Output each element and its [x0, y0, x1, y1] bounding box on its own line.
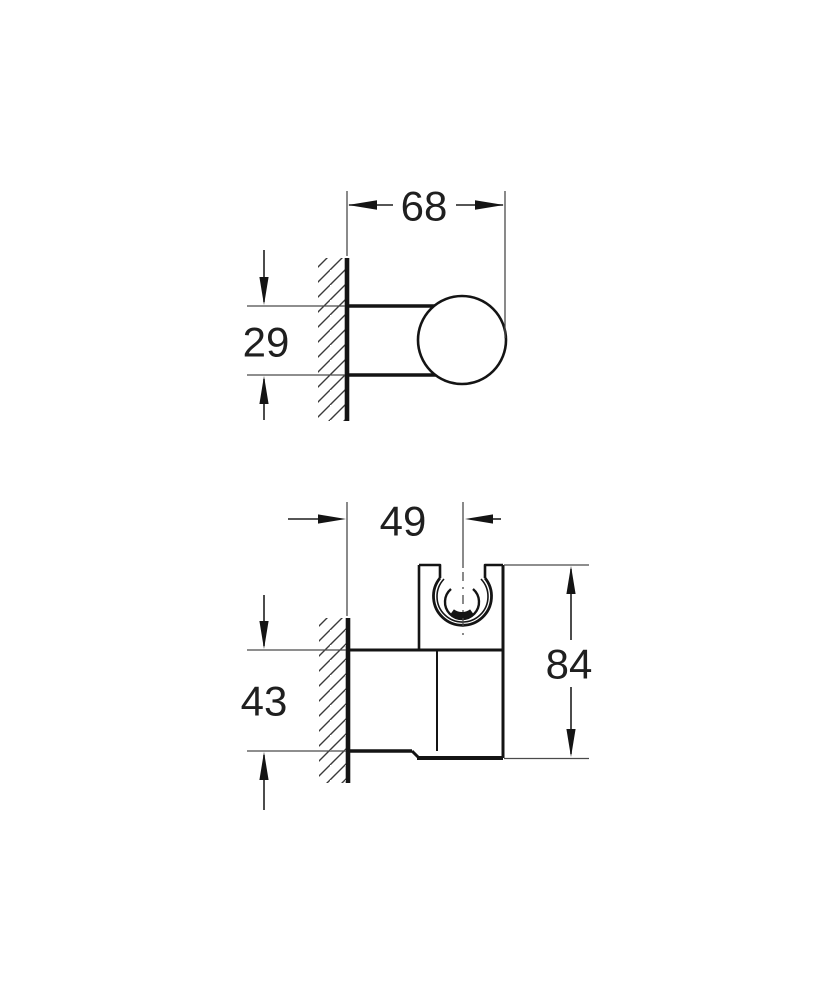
ball-knob-circle: [418, 296, 506, 384]
arrowhead-left-icon: [465, 514, 493, 523]
dimension-drawing-canvas: 68 29: [0, 0, 833, 1000]
holder-body: [348, 565, 503, 758]
dimension-49: 49: [288, 498, 501, 617]
mount-height-dimension-label: 43: [241, 678, 288, 725]
clip-bottom-seam: [452, 612, 472, 615]
side-view: 68 29: [243, 183, 506, 422]
arrowhead-down-icon: [259, 277, 268, 305]
dimension-84: 84: [504, 565, 592, 759]
arrowhead-right-icon: [318, 514, 346, 523]
arrowhead-left-icon: [348, 200, 377, 209]
arrowhead-up-icon: [259, 376, 268, 404]
wall-hatching-bottom: [319, 618, 348, 783]
height-dimension-label: 29: [243, 319, 290, 366]
offset-dimension-label: 49: [380, 498, 427, 545]
arrowhead-down-icon: [566, 729, 575, 757]
depth-dimension-label: 68: [401, 183, 448, 230]
arrowhead-up-icon: [259, 752, 268, 780]
clip-left-tab: [419, 565, 440, 578]
arrowhead-down-icon: [259, 621, 268, 649]
front-view: 49 43 84: [241, 498, 593, 811]
arrowhead-right-icon: [475, 200, 504, 209]
shower-holder-technical-drawing: 68 29: [0, 0, 833, 1000]
arrowhead-up-icon: [566, 566, 575, 594]
wall-hatching-top: [318, 258, 347, 421]
total-height-dimension-label: 84: [546, 641, 593, 688]
clip-right-tab: [485, 565, 503, 578]
